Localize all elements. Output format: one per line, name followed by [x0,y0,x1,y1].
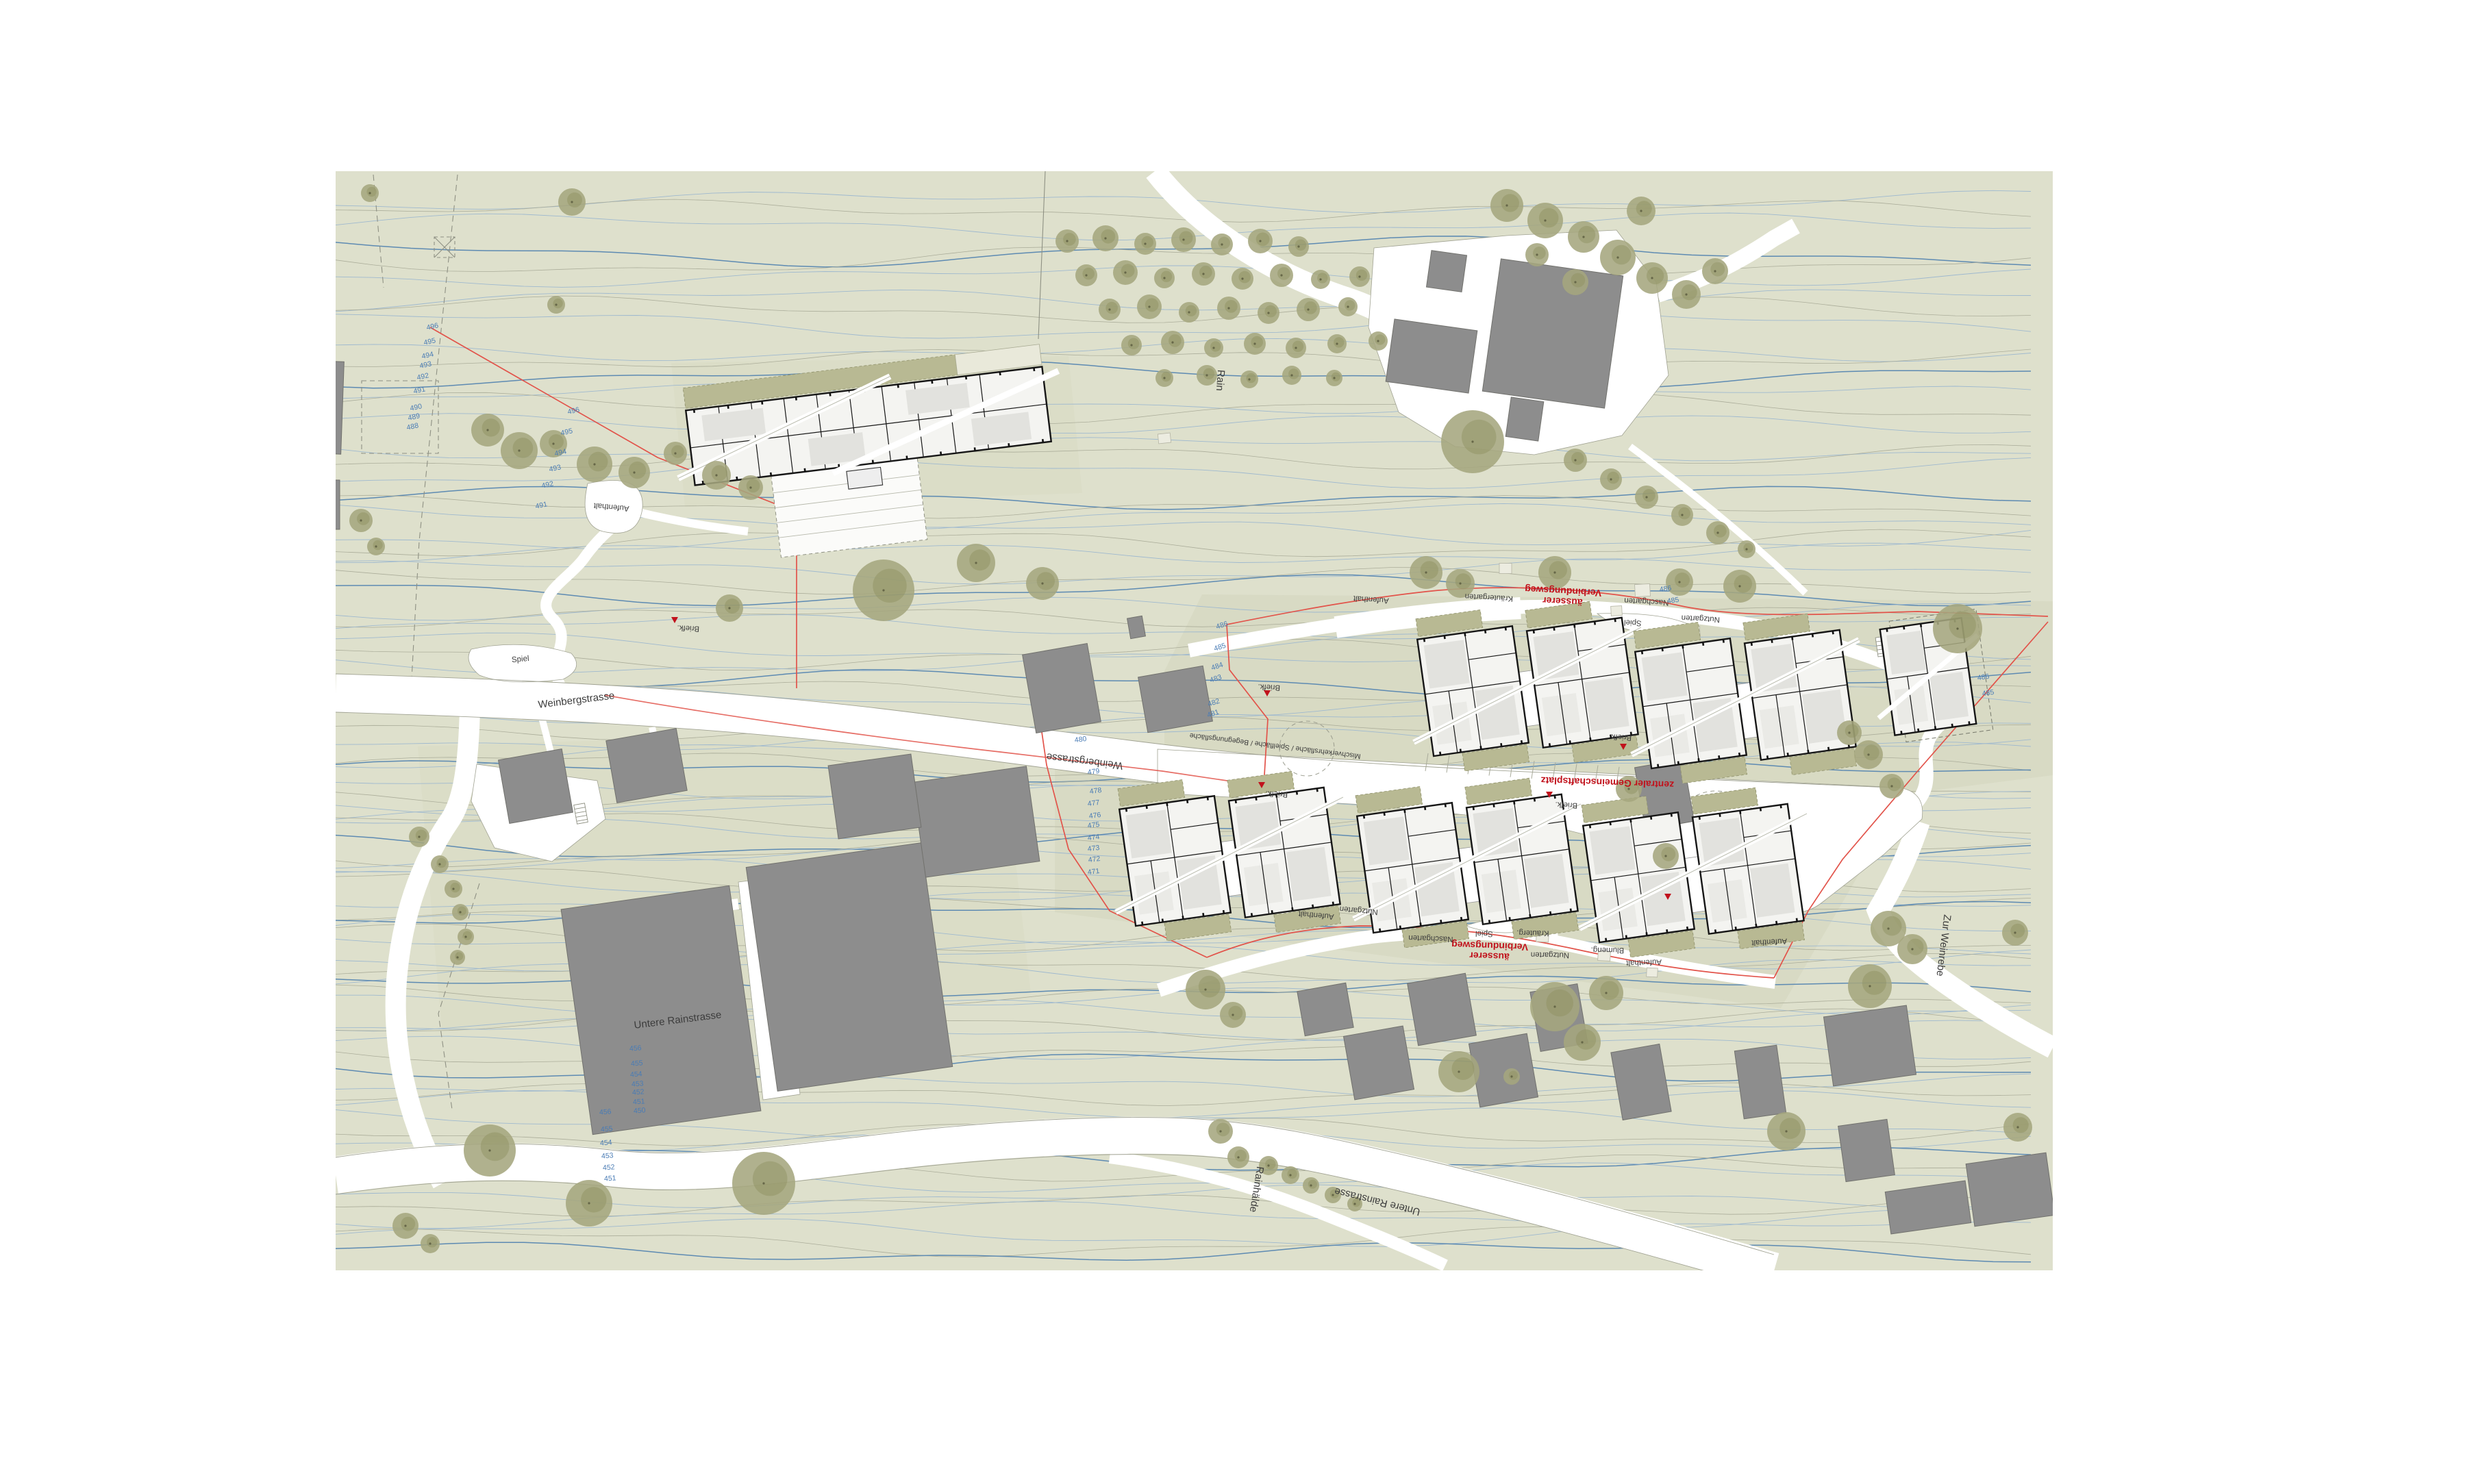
new-building-cluster [1397,588,1658,785]
area-label: Nutzgarten [1531,951,1569,959]
tree [1248,229,1273,253]
area-label: Briefk. [1609,732,1632,742]
tree [1113,260,1138,285]
tree [1600,240,1636,275]
tree [1767,1112,1805,1150]
tree [1197,365,1217,386]
elevation-label: 452 [603,1163,615,1172]
elevation-label: 476 [1088,811,1101,820]
tree [471,414,504,447]
elevation-label: 451 [633,1097,645,1106]
elevation-label: 475 [1087,820,1100,830]
area-label: Briefk. [1258,682,1280,692]
tree [853,559,914,621]
area-label: Kräuterg. [1516,929,1549,938]
tree [1326,370,1342,386]
tree [1286,338,1306,358]
tree [1653,843,1679,869]
elevation-label: 455 [601,1124,613,1133]
tree [1240,370,1258,388]
elevation-label: 455 [631,1059,643,1068]
tree [1220,1002,1246,1028]
tree [1297,298,1320,321]
elevation-label: 485 [1982,688,1995,698]
tree [349,509,373,532]
tree [1075,264,1097,286]
tree [1311,270,1330,289]
tree [1627,197,1655,225]
tree [1186,970,1225,1009]
tree [1134,233,1156,255]
map-area: WeinbergstrasseWeinbergstrasseUntere Rai… [312,171,2055,1287]
elevation-label: 450 [634,1106,646,1115]
tree [702,461,731,490]
tree [1244,333,1266,355]
tree [1530,982,1579,1031]
tree [1589,976,1623,1010]
tree [409,827,429,847]
tree [1338,297,1358,316]
tree [1410,556,1442,589]
tree [1503,1068,1520,1085]
area-label: Briefk. [677,623,699,633]
tree [1837,720,1862,745]
tree [1121,335,1142,355]
elevation-label: 478 [1089,786,1102,796]
tree [1303,1177,1319,1194]
elevation-label: 451 [604,1174,616,1183]
tree [618,457,650,488]
tree [558,188,586,216]
tree [1635,486,1658,509]
site-plan-svg: WeinbergstrasseWeinbergstrasseUntere Rai… [0,0,2474,1484]
tree [1600,468,1622,490]
elevation-label: 479 [1087,767,1100,777]
tree [1702,258,1728,284]
elevation-label: 456 [629,1044,642,1053]
tree [1211,234,1233,255]
tree [464,1124,516,1177]
tree [452,904,468,920]
tree [367,538,385,555]
area-label: Spiel [511,655,529,664]
tree [957,544,995,582]
tree [445,880,462,898]
tree [1897,934,1927,964]
tree [1092,225,1119,251]
new-building-cluster [1336,765,1598,961]
tree [392,1213,418,1239]
area-label: Spiel [1475,929,1493,938]
tree [1282,1166,1299,1184]
street-label: Rain [1214,369,1227,391]
tree [421,1234,440,1253]
tree [1154,268,1175,288]
elevation-label: 486 [1659,584,1672,594]
tree [1288,236,1309,257]
tree [1636,262,1668,294]
tree [1208,1119,1233,1144]
tree [361,184,379,202]
elevation-label: 454 [600,1138,612,1147]
elevation-label: 456 [599,1107,612,1116]
tree [1227,1146,1249,1168]
tree [1438,1051,1479,1092]
tree [664,442,687,465]
tree [458,929,474,945]
tree [1270,264,1293,287]
site-plan-page: WeinbergstrasseWeinbergstrasseUntere Rai… [0,0,2474,1484]
tree [577,447,612,482]
tree [450,950,465,965]
tree [1490,189,1523,222]
area-label: Briefk. [1265,789,1288,798]
tree [1369,331,1388,351]
tree [1672,280,1701,309]
tree [1564,449,1587,472]
tree [1282,366,1301,385]
elevation-label: 472 [1088,855,1101,864]
area-label: Blumeng. [1591,946,1625,955]
tree [1137,294,1162,319]
tree [738,475,763,500]
tree [1232,268,1253,290]
elevation-label: 474 [1087,833,1100,842]
elevation-label: 453 [601,1151,614,1160]
tree [2003,1113,2032,1142]
elevation-label: 471 [1087,867,1100,877]
elevation-label: 480 [1074,735,1087,744]
tree [1706,521,1729,544]
new-building-cluster [1614,601,1876,797]
area-label: Naschgarten [1408,933,1453,943]
area-label: Aufenthalt [1625,957,1662,967]
tree [1879,774,1904,798]
tree [431,855,449,873]
tree [1204,338,1223,357]
tree [2002,920,2028,946]
tree [1848,964,1892,1008]
tree [1055,229,1079,253]
area-label: Spiel [1624,618,1642,627]
elevation-label: 486 [1977,672,1990,682]
tree [716,594,743,622]
elevation-label: 477 [1087,798,1100,808]
tree [1671,504,1693,526]
tree [1854,740,1883,769]
tree [1568,221,1599,253]
tree [1564,1024,1601,1061]
tree [1179,302,1199,323]
elevation-label: 454 [630,1070,642,1079]
tree [1258,302,1279,324]
elevation-label: 473 [1087,844,1100,853]
tree [1217,297,1240,320]
tree [1161,331,1184,354]
tree [1441,410,1504,473]
tree [1171,227,1196,252]
tree [547,296,565,314]
tree [1562,269,1588,295]
tree [501,432,538,469]
tree [1192,262,1215,286]
elevation-label: 485 [1666,596,1679,605]
tree [1538,556,1571,589]
tree [1933,604,1982,653]
area-label: Briefk. [1555,800,1577,809]
tree [1099,299,1121,320]
tree [732,1152,795,1215]
tree [1155,369,1173,387]
elevation-label: 452 [632,1087,645,1096]
tree [1525,243,1549,266]
tree [1738,540,1755,558]
tree [1349,266,1370,287]
tree [566,1180,612,1227]
tree [1723,570,1756,603]
tree [1527,203,1563,238]
tree [1026,567,1059,600]
new-building-cluster [1099,758,1360,955]
tree [1327,334,1347,353]
